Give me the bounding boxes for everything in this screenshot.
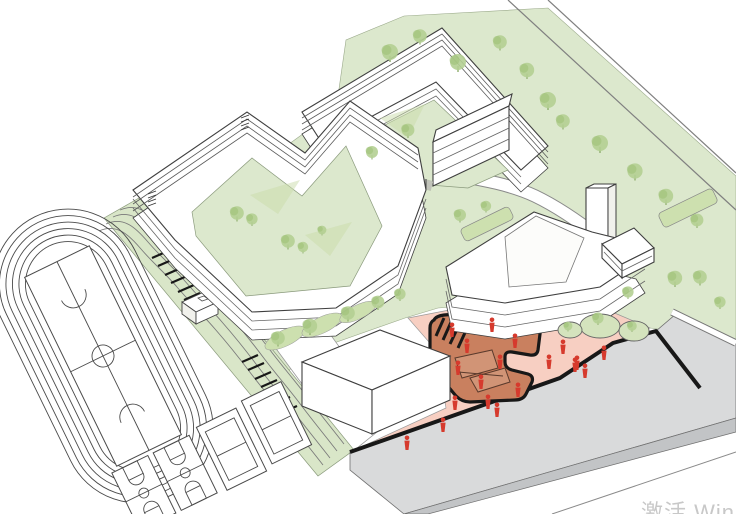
masterplan-canvas bbox=[0, 0, 736, 514]
activate-windows-watermark: 激活 Win bbox=[641, 495, 735, 514]
site-plan-illustration: 激活 Win bbox=[0, 0, 736, 514]
